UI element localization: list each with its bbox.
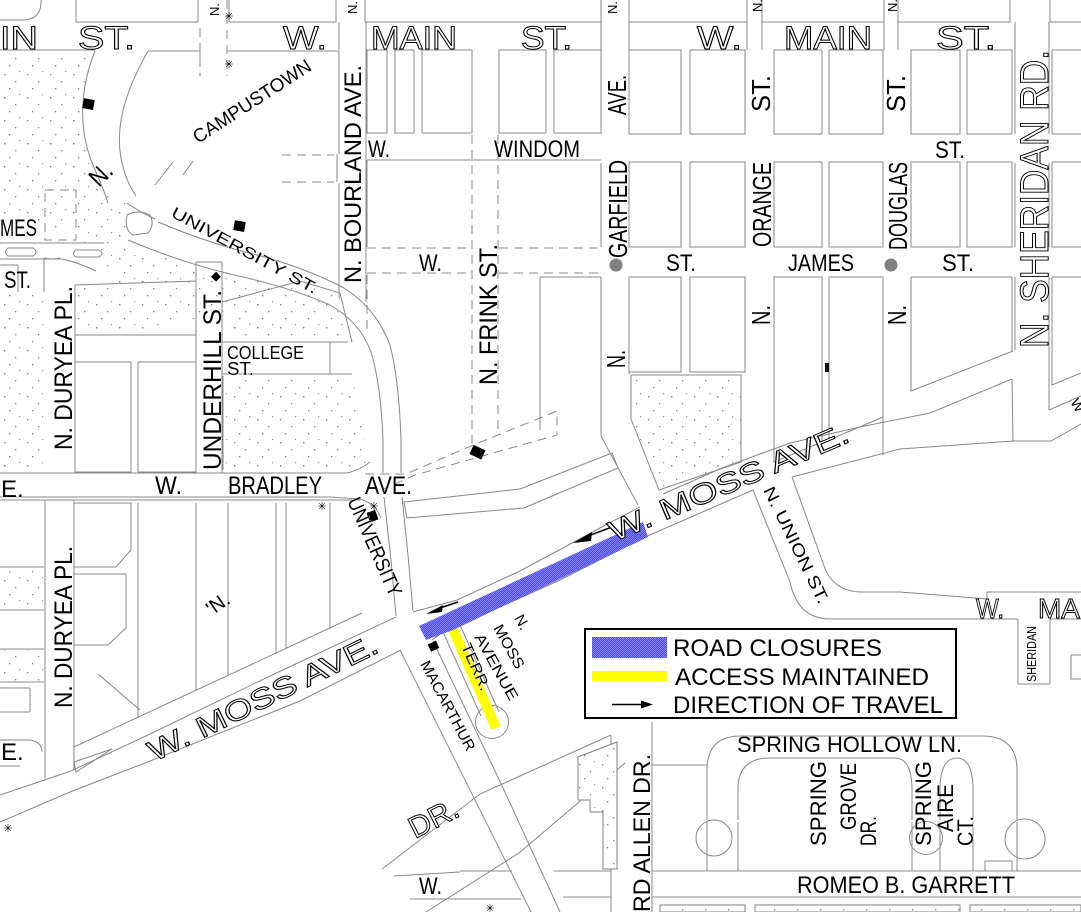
svg-text:✳: ✳ — [224, 59, 233, 71]
svg-text:AVE.: AVE. — [602, 75, 632, 115]
svg-text:ST.: ST. — [942, 250, 974, 277]
svg-text:W.: W. — [368, 136, 390, 163]
svg-text:✳: ✳ — [224, 11, 233, 23]
svg-text:ST.: ST. — [746, 75, 776, 112]
svg-text:ACCESS MAINTAINED: ACCESS MAINTAINED — [675, 664, 929, 691]
svg-text:✳: ✳ — [317, 501, 326, 513]
svg-text:WINDOM: WINDOM — [494, 136, 580, 163]
svg-text:SHERIDAN: SHERIDAN — [1024, 626, 1039, 682]
svg-text:W.: W. — [976, 593, 1004, 624]
svg-text:W.: W. — [419, 250, 442, 277]
svg-text:N. SHERIDAN RD.: N. SHERIDAN RD. — [1013, 50, 1057, 348]
svg-text:ST.: ST. — [666, 250, 696, 277]
svg-text:ROMEO B. GARRETT: ROMEO B. GARRETT — [797, 872, 1015, 899]
svg-text:N. FRINK ST.: N. FRINK ST. — [475, 244, 503, 385]
svg-text:ST.: ST. — [521, 20, 572, 56]
svg-text:DIRECTION OF TRAVEL: DIRECTION OF TRAVEL — [673, 692, 943, 719]
svg-text:BRADLEY: BRADLEY — [228, 472, 322, 500]
svg-text:MAR: MAR — [1038, 593, 1081, 624]
svg-text:CT.: CT. — [953, 816, 978, 846]
svg-text:RD ALLEN DR.: RD ALLEN DR. — [629, 754, 656, 912]
svg-text:MES: MES — [0, 215, 37, 242]
svg-text:GARFIELD: GARFIELD — [603, 160, 633, 258]
svg-text:N.: N. — [750, 0, 765, 12]
svg-text:ST.: ST. — [935, 137, 965, 164]
svg-text:ORANGE: ORANGE — [747, 162, 777, 247]
svg-text:E.: E. — [1, 739, 24, 766]
svg-text:DOUGLAS: DOUGLAS — [883, 162, 913, 250]
svg-text:E.: E. — [1, 476, 24, 503]
svg-text:W.: W. — [283, 20, 327, 56]
svg-text:N.: N. — [601, 350, 631, 368]
svg-text:N.: N. — [605, 1, 620, 14]
svg-text:ST.: ST. — [936, 20, 996, 56]
svg-text:✳: ✳ — [485, 903, 494, 912]
svg-text:ST.: ST. — [78, 20, 135, 56]
svg-text:ST.: ST. — [4, 267, 31, 294]
svg-text:JAMES: JAMES — [788, 250, 854, 277]
svg-text:MAIN: MAIN — [784, 20, 872, 56]
svg-text:UNDERHILL ST.: UNDERHILL ST. — [199, 290, 227, 470]
svg-text:N. DURYEA PL.: N. DURYEA PL. — [50, 546, 78, 708]
svg-text:SPRING HOLLOW LN.: SPRING HOLLOW LN. — [737, 732, 962, 757]
svg-text:W.: W. — [155, 472, 182, 500]
svg-text:W.: W. — [419, 873, 442, 900]
svg-text:N.: N. — [207, 3, 222, 16]
svg-text:N. DURYEA PL.: N. DURYEA PL. — [50, 286, 78, 450]
svg-text:✳: ✳ — [3, 823, 12, 835]
svg-text:N.: N. — [345, 1, 360, 14]
svg-text:DR.: DR. — [856, 816, 881, 846]
svg-text:W.: W. — [697, 20, 742, 56]
svg-text:ST.: ST. — [881, 75, 911, 112]
svg-text:N.: N. — [882, 305, 912, 325]
svg-text:N.: N. — [885, 0, 900, 12]
svg-text:ROAD CLOSURES: ROAD CLOSURES — [673, 635, 882, 662]
svg-text:N.: N. — [746, 305, 776, 325]
svg-text:IN: IN — [0, 20, 38, 56]
svg-text:AVE.: AVE. — [365, 472, 412, 500]
svg-text:N. BOURLAND AVE.: N. BOURLAND AVE. — [340, 65, 367, 283]
svg-text:MAIN: MAIN — [371, 20, 457, 56]
svg-text:ST.: ST. — [227, 359, 254, 379]
svg-text:SPRING: SPRING — [806, 761, 831, 846]
